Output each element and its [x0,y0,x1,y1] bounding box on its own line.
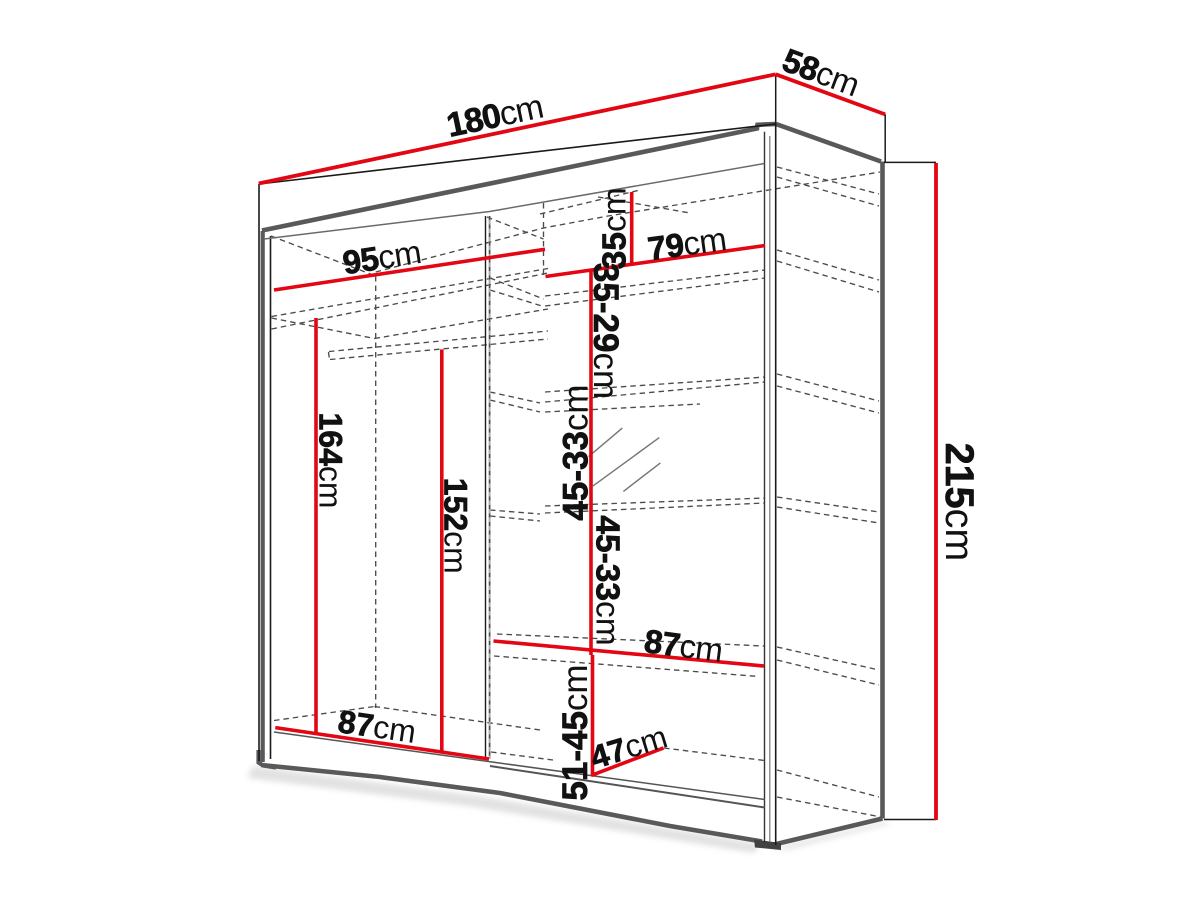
svg-text:35cm: 35cm [597,187,634,269]
svg-text:35-29cm: 35-29cm [586,263,625,399]
svg-text:51-45cm: 51-45cm [556,664,595,800]
svg-text:164cm: 164cm [312,412,348,508]
svg-text:152cm: 152cm [438,478,474,574]
svg-text:215cm: 215cm [937,443,981,562]
svg-text:45-33cm: 45-33cm [588,515,625,645]
svg-text:45-33cm: 45-33cm [557,384,596,520]
